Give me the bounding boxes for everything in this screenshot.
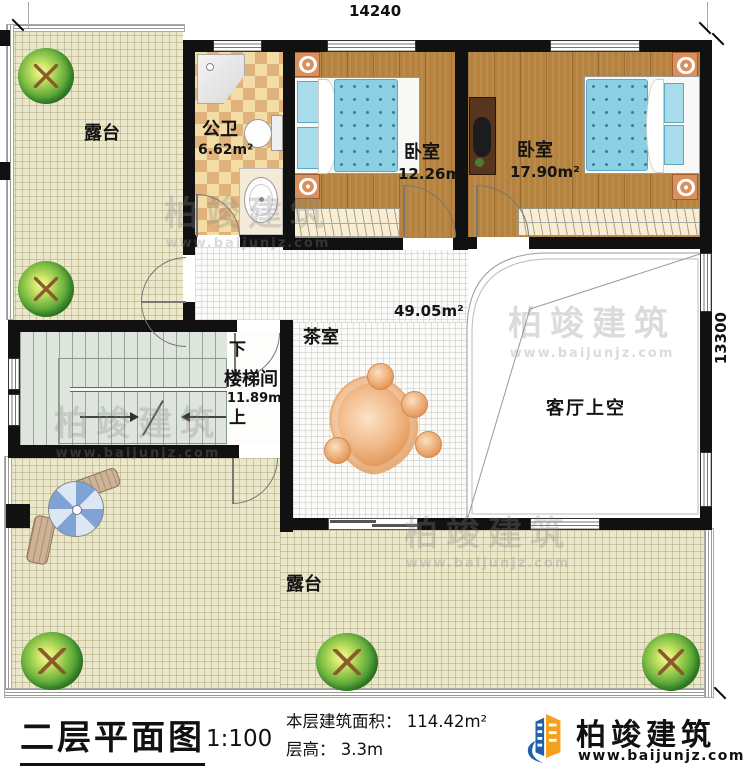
dimension-tick — [714, 687, 727, 700]
toilet-tank — [271, 115, 283, 151]
bed-blanket — [646, 79, 664, 173]
floor-height-text: 层高： 3.3m — [286, 736, 383, 760]
floor-area-text: 本层建筑面积： 114.42m² — [286, 708, 487, 732]
window — [213, 40, 262, 52]
terrace-railing — [4, 456, 12, 696]
sink-tap — [259, 197, 264, 202]
floor-plan-page: 柏竣建筑 www.baijunjz.com 柏竣建筑 www.baijunjz.… — [0, 0, 750, 784]
bed-pillow — [664, 83, 684, 123]
bed-pillow — [297, 127, 319, 169]
bed-pillow — [664, 125, 684, 165]
label-stairwell: 楼梯间 — [224, 370, 278, 390]
dimension-tick — [699, 22, 712, 35]
stair-flight-outline — [58, 358, 227, 444]
label-bathroom-area: 6.62m² — [198, 143, 253, 158]
door-opening — [477, 237, 529, 249]
door-leaf — [476, 185, 478, 237]
patio-umbrella — [48, 481, 104, 537]
stair-handrail — [70, 387, 227, 392]
door-leaf — [141, 301, 186, 303]
title-block: 二层平面图 1:100 本层建筑面积： 114.42m² 层高： 3.3m 柏竣… — [0, 700, 750, 784]
wall — [293, 518, 328, 530]
window — [700, 452, 712, 507]
brand-website: www.baijunjz.com — [578, 748, 745, 764]
nightstand — [672, 52, 698, 78]
door-opening — [237, 320, 280, 332]
plant — [475, 158, 484, 167]
tree — [316, 633, 378, 691]
label-bedroom1: 卧室 — [404, 143, 440, 163]
tree — [18, 261, 74, 317]
wall — [529, 237, 712, 249]
wall — [8, 320, 237, 332]
wall — [183, 235, 197, 247]
railing-post — [0, 30, 10, 46]
wall — [283, 238, 403, 250]
wall — [453, 238, 468, 250]
door-leaf — [232, 458, 234, 504]
window — [530, 518, 600, 530]
nightstand — [672, 174, 698, 200]
terrace-railing — [704, 528, 714, 698]
door-opening — [403, 238, 453, 250]
sliding-door-panel — [372, 524, 418, 527]
wall — [600, 518, 712, 530]
wall — [8, 445, 239, 458]
wall — [455, 52, 468, 245]
dimension-extension-line — [707, 2, 708, 32]
tree — [21, 632, 83, 690]
living-void-outline — [455, 247, 707, 523]
plan-title: 二层平面图 — [20, 710, 205, 766]
stair-arrow-icon — [130, 412, 139, 422]
terrace-railing — [6, 24, 185, 32]
stool — [401, 391, 428, 418]
label-tearoom-area: 49.05m² — [394, 303, 464, 320]
sliding-door-panel — [330, 520, 376, 523]
bed-mattress — [334, 79, 398, 172]
window — [8, 394, 20, 426]
window — [550, 40, 640, 52]
wall — [8, 320, 20, 358]
tree — [18, 48, 74, 104]
wardrobe — [293, 208, 400, 237]
dimension-tick — [712, 33, 725, 46]
window — [327, 40, 416, 52]
window — [8, 358, 20, 390]
shower-drain — [206, 63, 214, 71]
bed-pillow — [297, 81, 319, 123]
wardrobe — [518, 208, 700, 236]
label-living-void: 客厅上空 — [546, 399, 626, 419]
stool — [324, 437, 351, 464]
label-stair-up: 上 — [229, 409, 246, 428]
dimension-top: 14240 — [349, 2, 401, 20]
dimension-extension-line — [28, 2, 29, 28]
wall — [283, 52, 295, 238]
label-stair-down: 下 — [229, 341, 246, 360]
terrace-railing — [4, 688, 714, 698]
label-bedroom2: 卧室 — [517, 141, 553, 161]
window — [700, 253, 712, 312]
door-leaf — [403, 185, 405, 237]
door-leaf — [196, 194, 198, 237]
bed-mattress — [586, 79, 648, 171]
label-terrace-top: 露台 — [84, 124, 120, 144]
wall — [468, 237, 477, 249]
label-tearoom: 茶室 — [303, 328, 339, 348]
dimension-right: 13300 — [712, 312, 730, 364]
wall — [280, 320, 293, 532]
stair-arrow-shaft — [80, 416, 130, 418]
nightstand — [294, 52, 320, 77]
brand-logo-icon — [524, 708, 570, 764]
wall — [8, 426, 20, 457]
railing-post — [6, 504, 30, 528]
door-opening — [239, 445, 280, 458]
wall — [418, 518, 530, 530]
label-bathroom: 公卫 — [202, 120, 238, 140]
railing-post — [0, 162, 10, 180]
label-terrace-bottom: 露台 — [286, 575, 322, 595]
tree — [642, 633, 700, 691]
stool — [415, 431, 442, 458]
stair-arrow-icon — [181, 412, 190, 422]
monitor — [473, 117, 491, 157]
stair-arrow-shaft — [190, 416, 226, 418]
label-bedroom1-area: 12.26m² — [398, 166, 468, 183]
plan-scale: 1:100 — [206, 726, 272, 752]
label-bedroom2-area: 17.90m² — [510, 164, 580, 181]
nightstand — [294, 174, 320, 199]
wall — [183, 40, 195, 255]
plan-canvas: 柏竣建筑 www.baijunjz.com 柏竣建筑 www.baijunjz.… — [0, 0, 750, 700]
label-stairwell-area: 11.89m² — [227, 392, 287, 406]
stool — [367, 363, 394, 390]
